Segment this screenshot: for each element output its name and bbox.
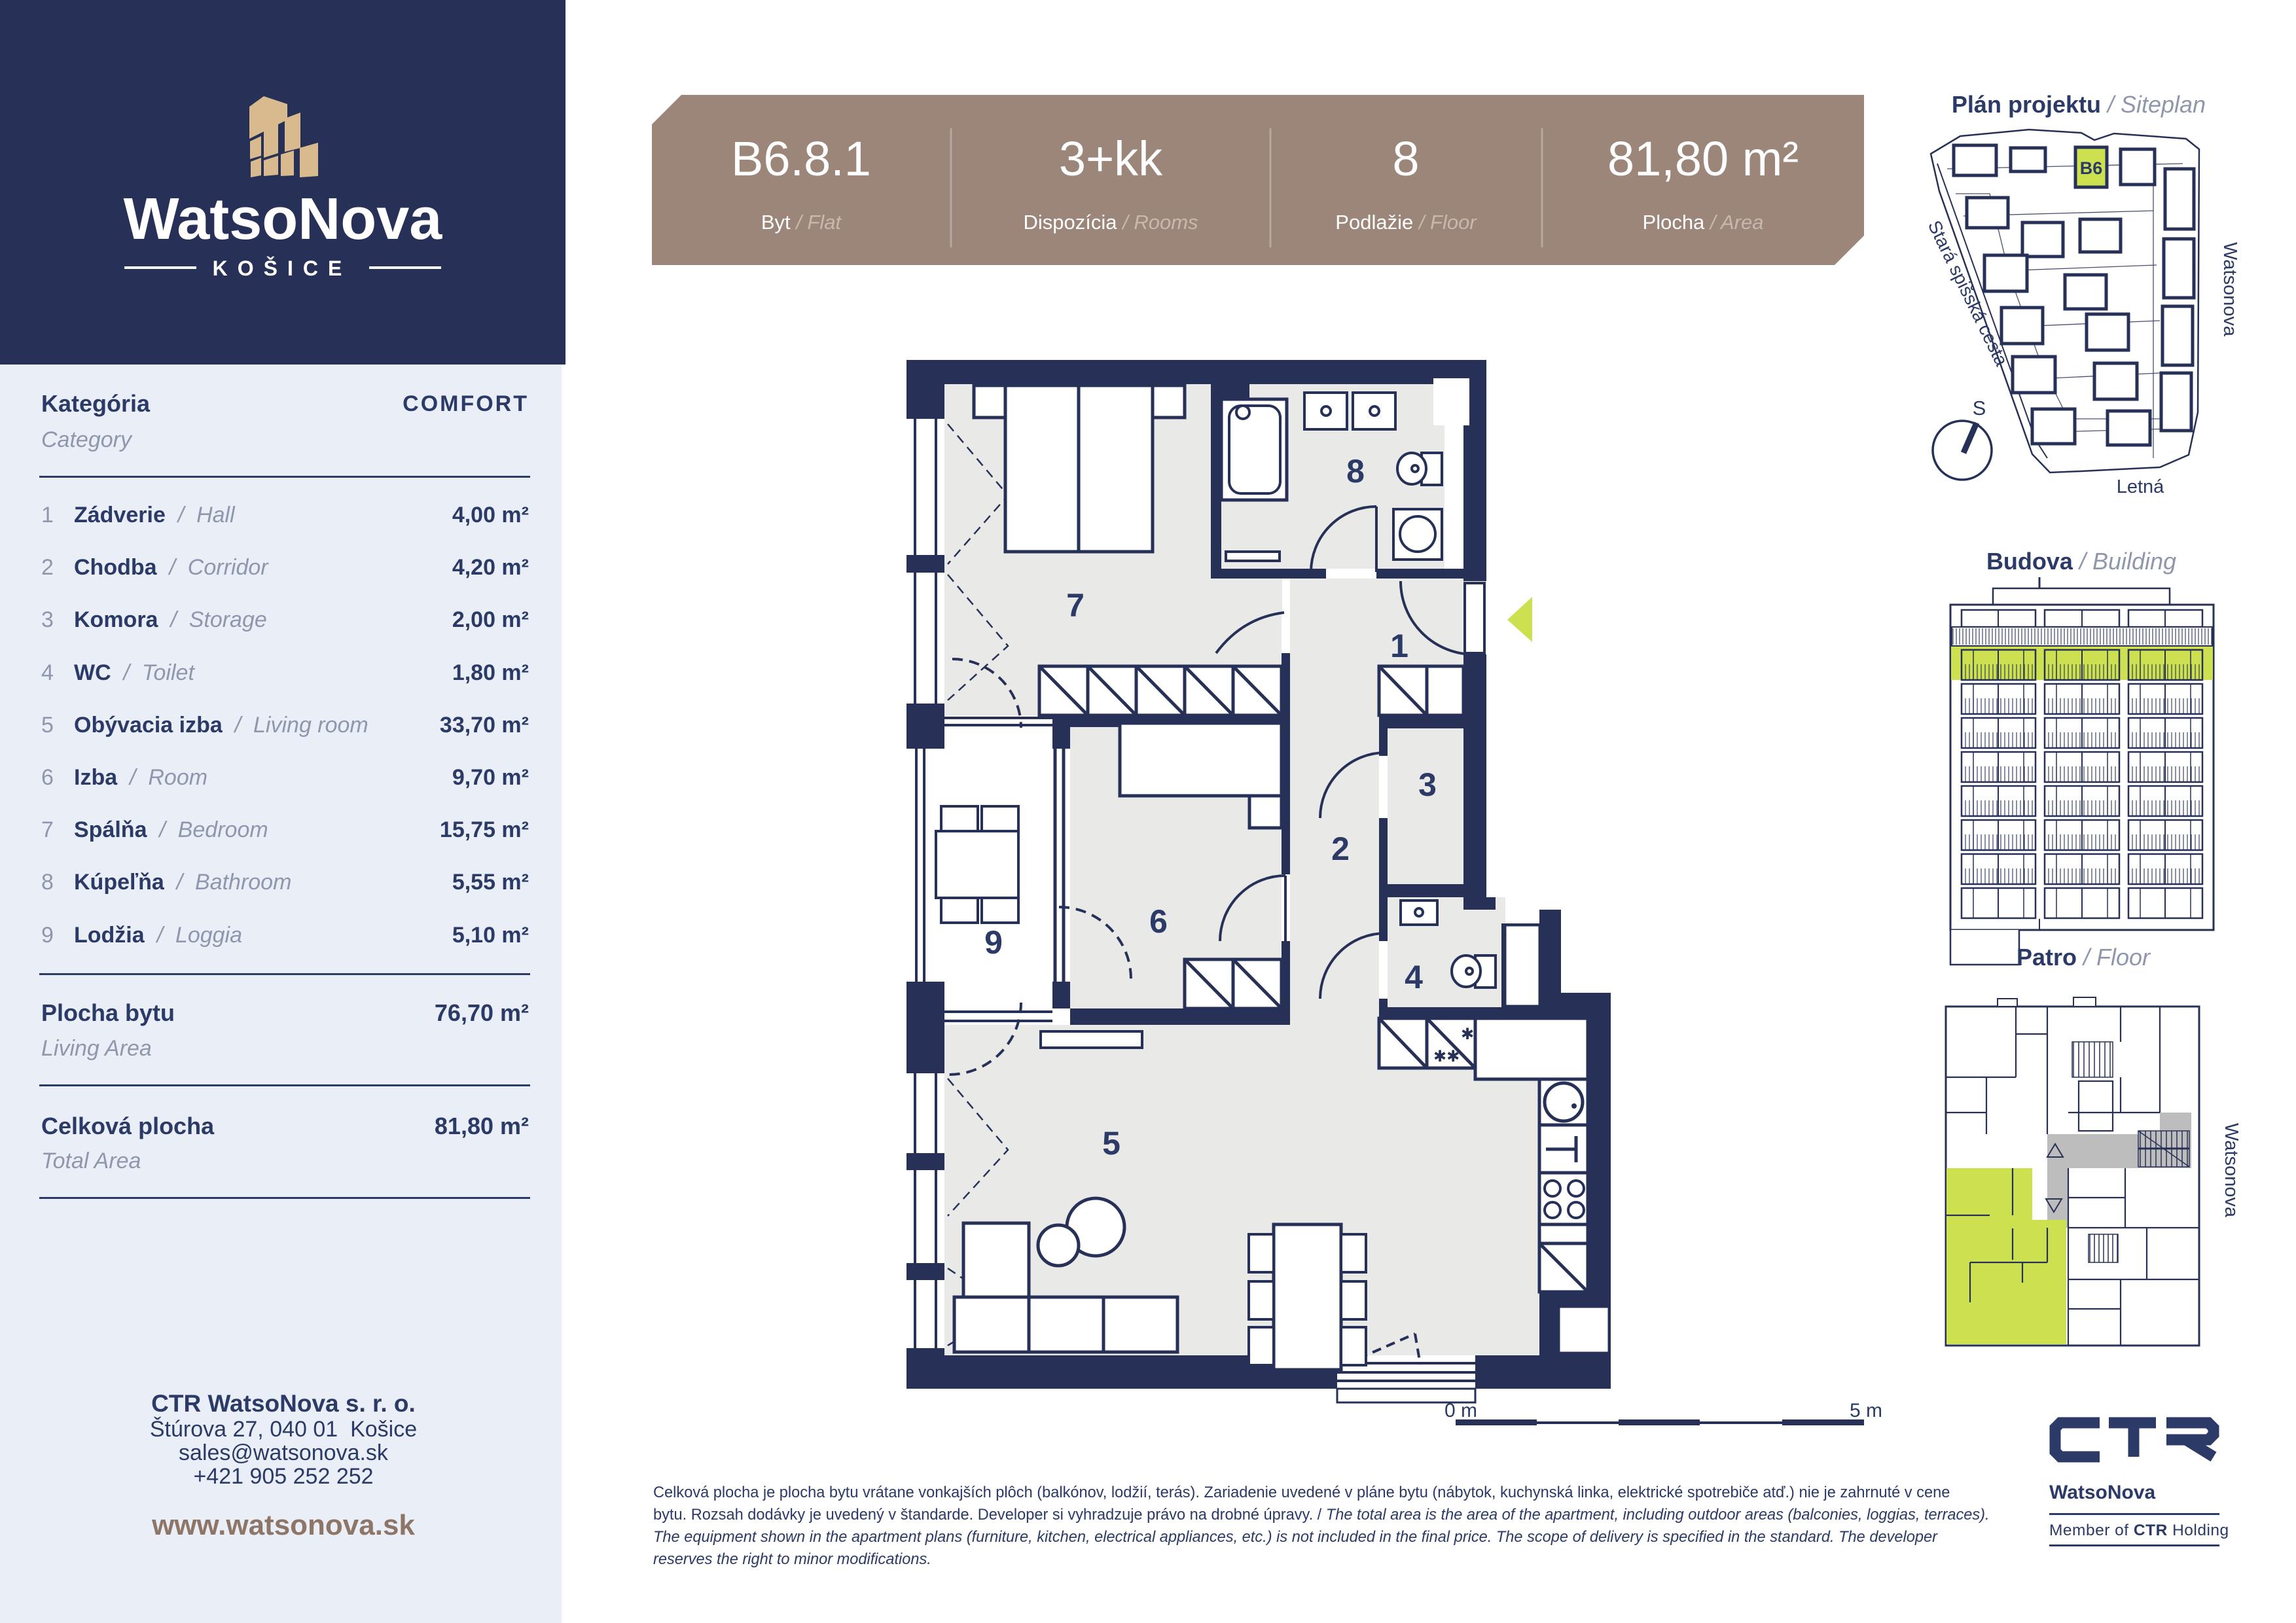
svg-text:www.watsonova.sk: www.watsonova.sk: [151, 1509, 415, 1541]
svg-text:76,70 m²: 76,70 m²: [435, 999, 529, 1026]
svg-text:WatsoNova: WatsoNova: [2049, 1482, 2156, 1503]
svg-text:Living Area: Living Area: [41, 1036, 152, 1061]
svg-text:Watsonova: Watsonova: [2221, 1123, 2242, 1218]
svg-text:Patro / Floor: Patro / Floor: [2017, 944, 2151, 971]
svg-text:8: 8: [1346, 453, 1365, 490]
svg-text:WC / Toilet: WC / Toilet: [74, 660, 195, 685]
svg-text:1: 1: [41, 503, 54, 527]
svg-text:9: 9: [984, 924, 1003, 961]
svg-text:Member of CTR Holding: Member of CTR Holding: [2049, 1522, 2229, 1539]
svg-text:5: 5: [41, 713, 54, 738]
svg-text:Budova / Building: Budova / Building: [1986, 548, 2176, 575]
svg-text:Celková plocha: Celková plocha: [41, 1113, 215, 1139]
svg-text:Spálňa / Bedroom: Spálňa / Bedroom: [74, 817, 268, 842]
svg-text:4,20 m²: 4,20 m²: [452, 555, 529, 580]
svg-text:WatsoNova: WatsoNova: [124, 187, 443, 252]
svg-text:Izba / Room: Izba / Room: [74, 765, 207, 790]
svg-text:15,75 m²: 15,75 m²: [440, 817, 529, 842]
svg-text:bytu. Rozsah dodávky je uveden: bytu. Rozsah dodávky je uvedený v štanda…: [653, 1507, 1990, 1524]
svg-text:4: 4: [41, 660, 54, 685]
svg-text:Komora / Storage: Komora / Storage: [74, 607, 267, 632]
svg-text:Plán projektu / Siteplan: Plán projektu / Siteplan: [1952, 91, 2206, 118]
svg-text:6: 6: [41, 765, 54, 790]
svg-text:+421 905 252 252: +421 905 252 252: [193, 1464, 373, 1489]
svg-text:3: 3: [41, 607, 54, 632]
svg-text:Byt / Flat: Byt / Flat: [761, 211, 842, 234]
svg-text:Plocha bytu: Plocha bytu: [41, 999, 175, 1026]
svg-text:2: 2: [1331, 830, 1350, 867]
svg-text:Dispozícia / Rooms: Dispozícia / Rooms: [1023, 211, 1198, 234]
svg-text:Category: Category: [41, 427, 133, 452]
svg-text:3: 3: [1418, 766, 1437, 803]
svg-text:sales@watsonova.sk: sales@watsonova.sk: [179, 1440, 389, 1465]
svg-text:Kúpeľňa / Bathroom: Kúpeľňa / Bathroom: [74, 870, 291, 895]
svg-text:7: 7: [1066, 587, 1085, 624]
svg-text:81,80 m²: 81,80 m²: [1607, 132, 1799, 186]
svg-text:5: 5: [1102, 1125, 1121, 1162]
svg-text:Chodba / Corridor: Chodba / Corridor: [74, 555, 269, 580]
svg-text:Lodžia / Loggia: Lodžia / Loggia: [74, 923, 242, 948]
svg-text:Plocha / Area: Plocha / Area: [1643, 211, 1764, 234]
svg-text:5,55 m²: 5,55 m²: [452, 870, 529, 895]
svg-text:Podlažie / Floor: Podlažie / Floor: [1335, 211, 1477, 234]
svg-text:Kategória: Kategória: [41, 390, 151, 417]
svg-text:2: 2: [41, 555, 54, 580]
svg-text:B6.8.1: B6.8.1: [731, 132, 871, 186]
svg-text:6: 6: [1149, 903, 1168, 940]
svg-text:9,70 m²: 9,70 m²: [452, 765, 529, 790]
svg-text:7: 7: [41, 817, 54, 842]
svg-text:3+kk: 3+kk: [1059, 132, 1163, 186]
svg-text:CTR WatsoNova s. r. o.: CTR WatsoNova s. r. o.: [151, 1390, 416, 1417]
svg-text:4: 4: [1405, 959, 1423, 995]
svg-text:4,00 m²: 4,00 m²: [452, 503, 529, 527]
svg-text:5 m: 5 m: [1850, 1400, 1882, 1421]
svg-text:✱: ✱: [1461, 1026, 1474, 1043]
svg-text:Letná: Letná: [2117, 476, 2164, 497]
svg-text:1,80 m²: 1,80 m²: [452, 660, 529, 685]
svg-text:33,70 m²: 33,70 m²: [440, 713, 529, 738]
svg-text:Štúrova 27, 040 01 Košice: Štúrova 27, 040 01 Košice: [150, 1417, 417, 1442]
svg-text:Obývacia izba / Living room: Obývacia izba / Living room: [74, 713, 368, 738]
svg-text:2,00 m²: 2,00 m²: [452, 607, 529, 632]
svg-text:81,80 m²: 81,80 m²: [435, 1113, 529, 1139]
svg-text:KOŠICE: KOŠICE: [213, 257, 352, 280]
svg-text:✱✱: ✱✱: [1433, 1048, 1460, 1065]
svg-text:Total Area: Total Area: [41, 1149, 141, 1173]
svg-text:COMFORT: COMFORT: [403, 391, 529, 416]
svg-text:B6: B6: [2080, 158, 2103, 178]
svg-text:8: 8: [41, 870, 54, 895]
svg-text:9: 9: [41, 923, 54, 948]
svg-text:S: S: [1973, 397, 1986, 419]
svg-text:Celková plocha je plocha bytu: Celková plocha je plocha bytu vrátane vo…: [653, 1484, 1950, 1501]
svg-text:8: 8: [1392, 132, 1419, 186]
svg-text:The equipment shown in the apa: The equipment shown in the apartment pla…: [653, 1529, 1938, 1546]
svg-text:Watsonova: Watsonova: [2219, 242, 2240, 337]
svg-text:Zádverie / Hall: Zádverie / Hall: [74, 503, 236, 527]
svg-text:1: 1: [1390, 628, 1408, 664]
svg-text:reserves the right to minor mo: reserves the right to minor modification…: [653, 1551, 931, 1568]
svg-text:5,10 m²: 5,10 m²: [452, 923, 529, 948]
